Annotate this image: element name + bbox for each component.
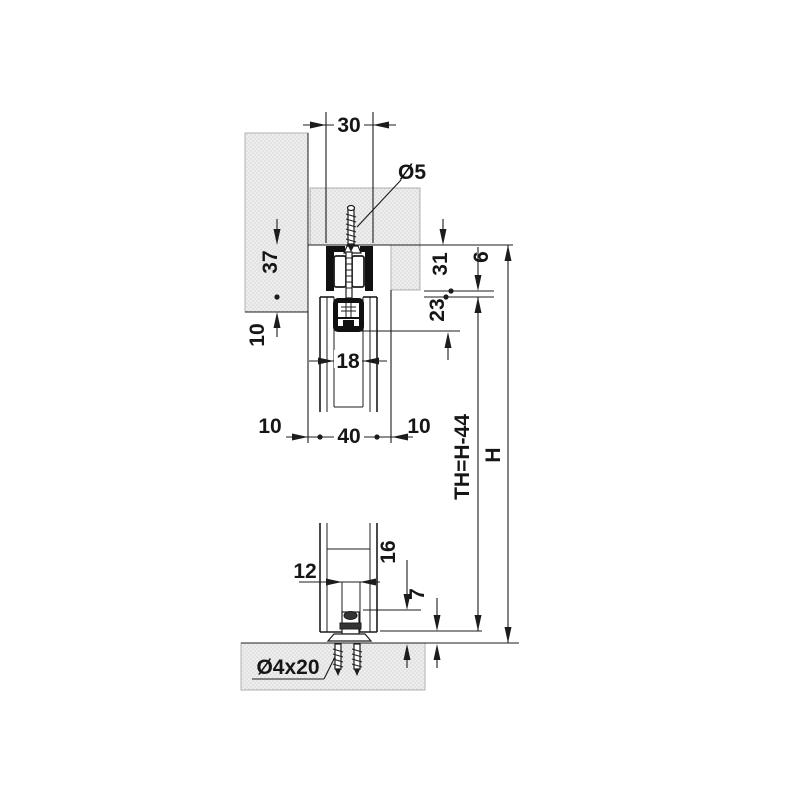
dim-door-thickness: 40 [337, 425, 360, 448]
dim-guide-groove-width: 12 [293, 560, 316, 583]
dim-left-clearance: 10 [258, 415, 281, 438]
dim-opening-height: H [482, 447, 505, 462]
roller-wheel-right [352, 256, 364, 287]
dim-track-width: 30 [337, 114, 360, 137]
roller-wheel-left [334, 256, 346, 287]
dim-guide-height: 16 [377, 540, 400, 563]
dim-track-screw: Ø5 [398, 161, 426, 184]
dim-right-clearance: 10 [407, 415, 430, 438]
dim-panel-to-door: 37 [259, 250, 282, 273]
dim-wall-overlap: 10 [246, 323, 269, 346]
dim-floor-screw: Ø4x20 [256, 656, 319, 679]
drawing-canvas: 30 Ø5 37 10 31 6 23 18 10 40 10 TH=H-44 … [0, 0, 800, 800]
hanger-housing [333, 298, 364, 332]
panels [241, 133, 425, 690]
sliding-door-section-drawing: 30 Ø5 37 10 31 6 23 18 10 40 10 TH=H-44 … [0, 0, 800, 800]
roller-hanger [334, 246, 364, 298]
hanger-bolt-shaft [346, 252, 352, 298]
dim-floor-gap: 7 [406, 588, 429, 600]
dim-hanger-groove-width: 18 [336, 350, 360, 373]
dim-door-height-formula: TH=H-44 [451, 414, 474, 500]
dim-track-to-door-gap: 6 [470, 251, 493, 263]
dim-door-top-to-hanger: 23 [426, 298, 449, 321]
guide-base-plate [328, 634, 371, 641]
bottom-guide [328, 612, 371, 642]
adjustment-slot [343, 320, 354, 326]
dim-surface-to-track-bottom: 31 [429, 252, 452, 276]
